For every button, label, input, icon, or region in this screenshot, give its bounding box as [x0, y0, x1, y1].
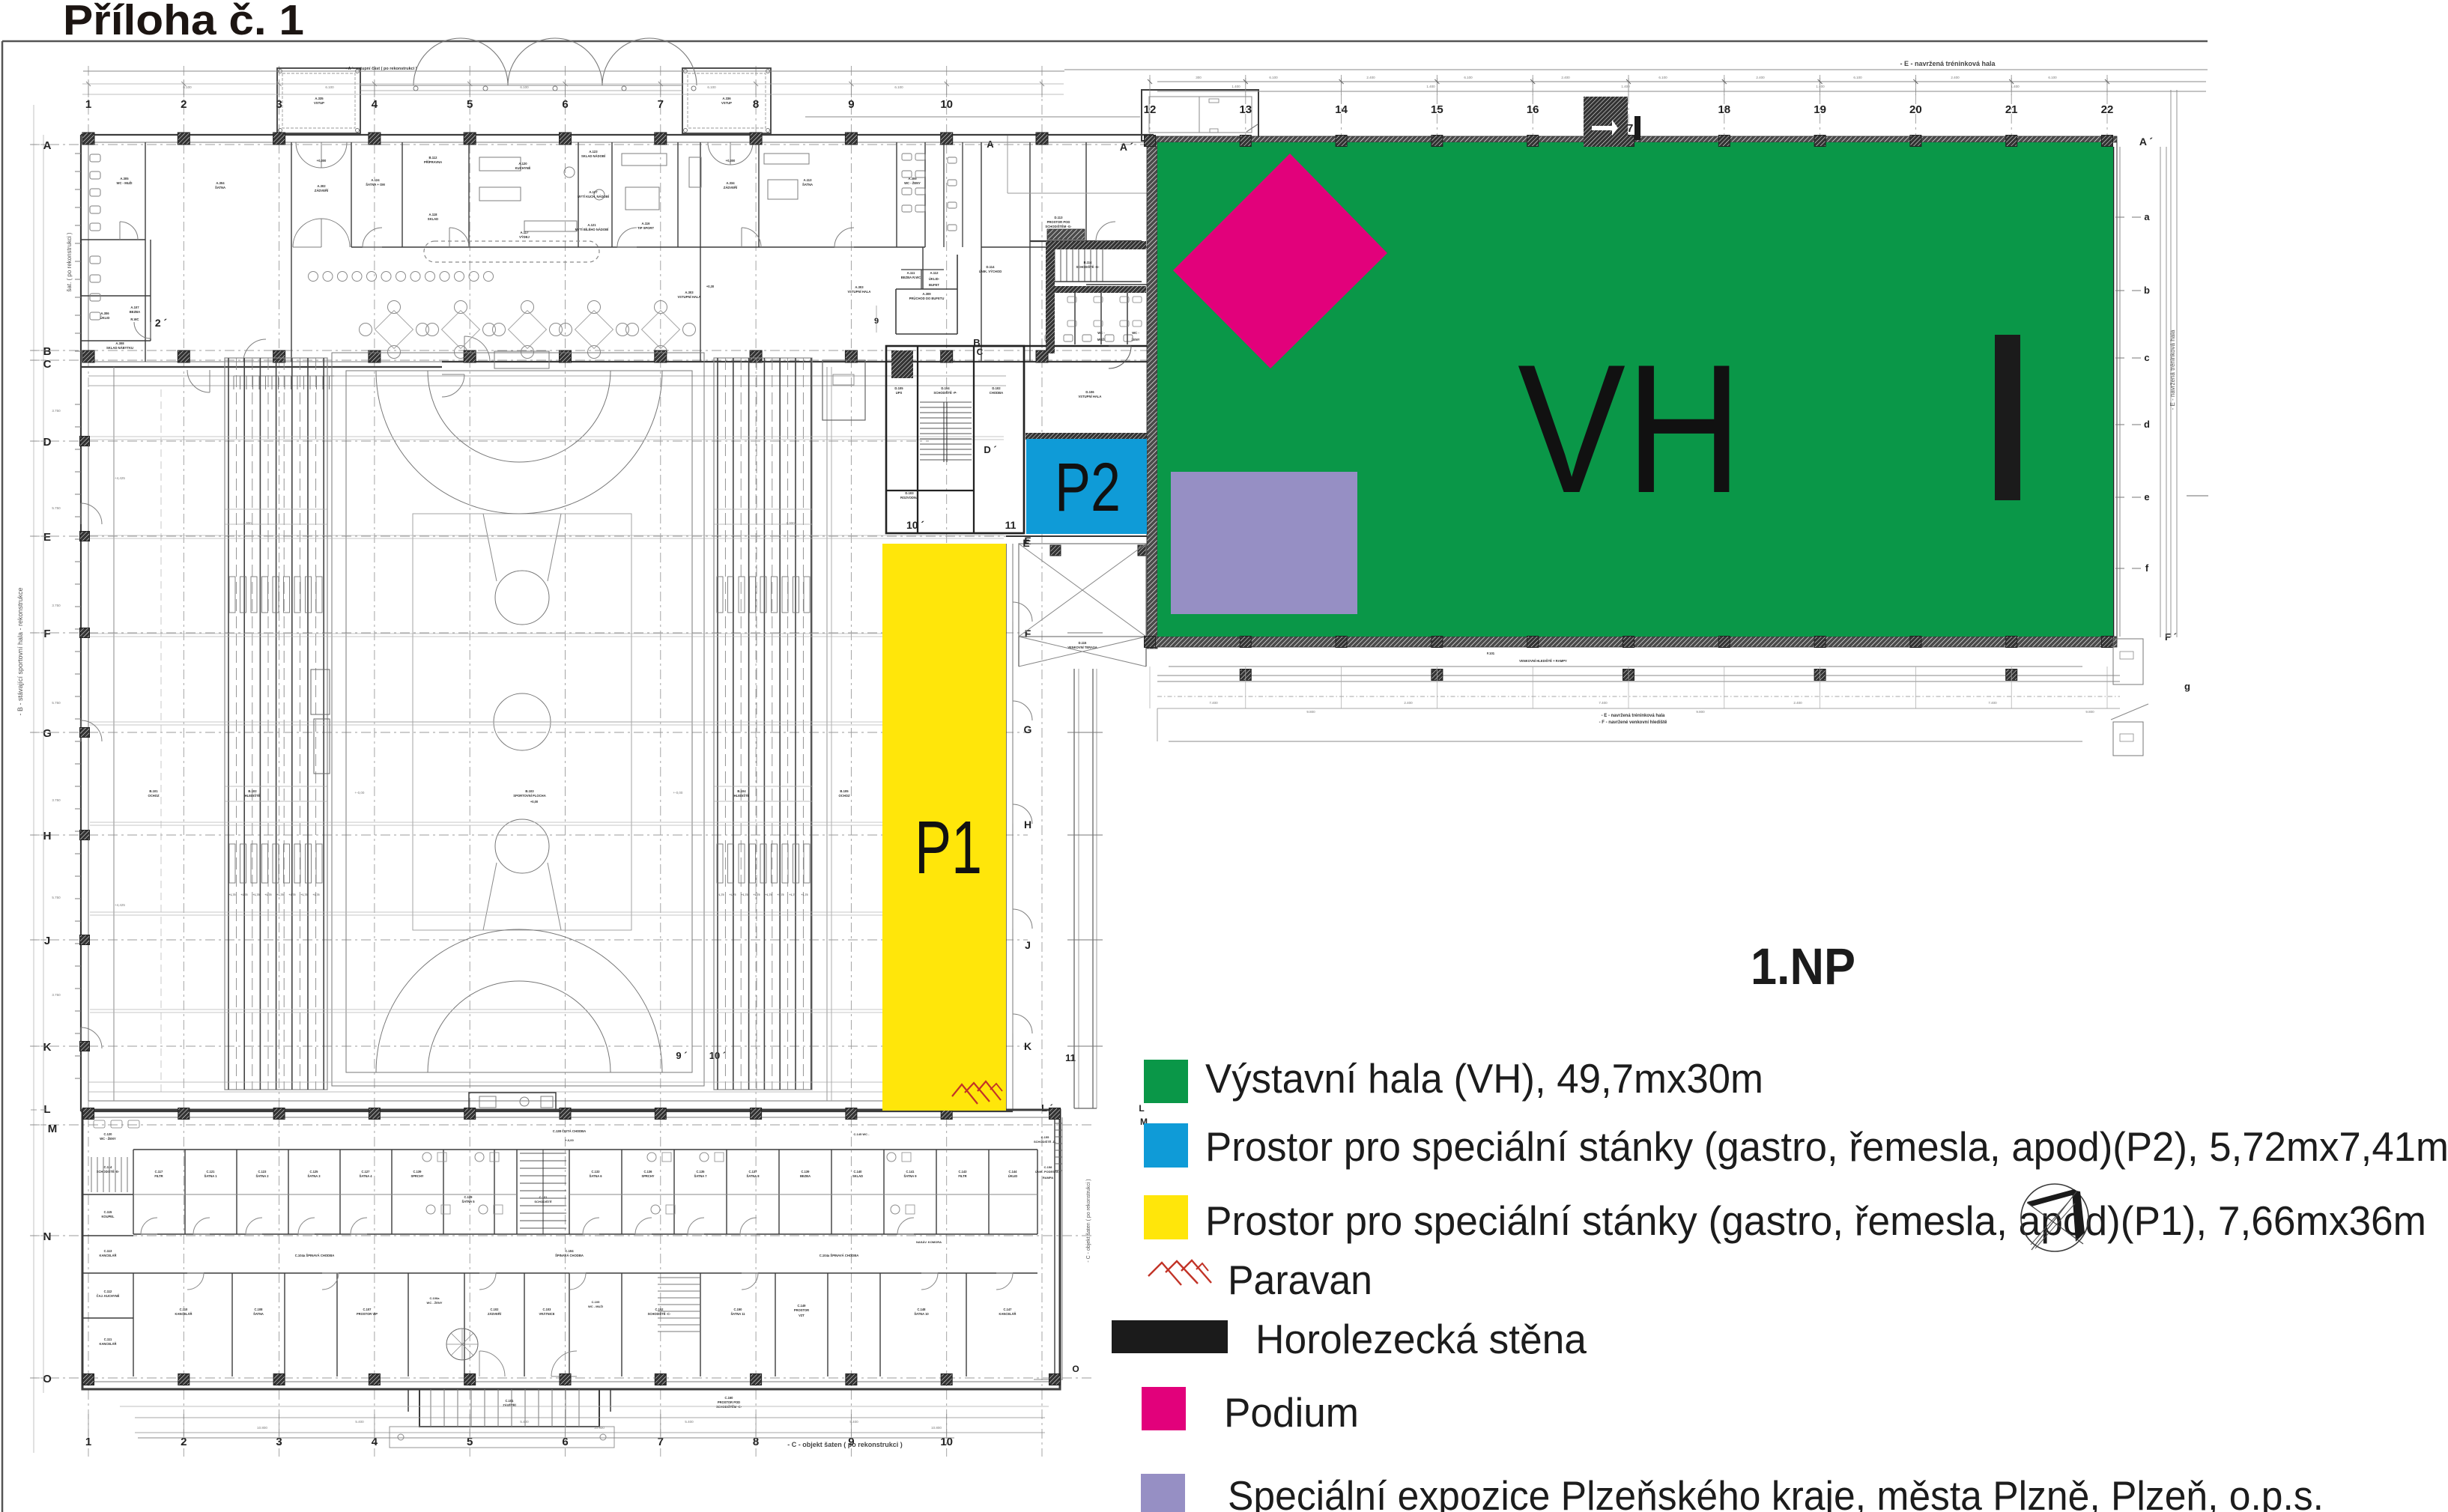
svg-text:C.145 WC -: C.145 WC -	[854, 1132, 870, 1136]
svg-text:300: 300	[1196, 76, 1202, 79]
svg-text:TIP SPORT: TIP SPORT	[637, 226, 654, 230]
svg-text:5.400: 5.400	[355, 1420, 364, 1424]
svg-text:6.100: 6.100	[325, 85, 334, 89]
svg-text:Prostor pro speciální stánky (: Prostor pro speciální stánky (gastro, ře…	[1205, 1123, 2448, 1170]
svg-text:B.114: B.114	[1084, 261, 1092, 264]
svg-text:7.400: 7.400	[1599, 701, 1608, 705]
svg-text:10: 10	[940, 98, 953, 111]
svg-text:9.800: 9.800	[2085, 710, 2094, 714]
svg-text:C.143: C.143	[959, 1170, 968, 1174]
svg-text:A.306: A.306	[100, 312, 109, 315]
svg-text:f: f	[2145, 562, 2149, 574]
svg-text:+1,75: +1,75	[252, 893, 259, 896]
svg-text:FILTR: FILTR	[958, 1174, 966, 1178]
svg-text:- A ´- vstupní část ( po rek: - A ´- vstupní část ( po rekonstrukci )	[345, 67, 416, 71]
svg-text:+4,425: +4,425	[115, 903, 125, 907]
svg-text:M: M	[48, 1123, 58, 1135]
svg-text:L: L	[43, 1103, 50, 1116]
svg-text:+0,300: +0,300	[317, 159, 327, 163]
svg-text:C.136: C.136	[644, 1170, 653, 1174]
svg-text:+0,00: +0,00	[530, 800, 539, 804]
svg-text:C.147: C.147	[1004, 1308, 1013, 1311]
svg-text:F: F	[1025, 628, 1031, 640]
svg-text:OCHOZ: OCHOZ	[838, 794, 850, 798]
svg-text:HLEDIŠTĚ: HLEDIŠTĚ	[734, 794, 750, 798]
svg-text:C.115: C.115	[104, 1210, 112, 1214]
svg-text:PROSTOR POD: PROSTOR POD	[718, 1400, 740, 1404]
svg-text:WC -: WC -	[1132, 331, 1139, 335]
svg-text:+1,75: +1,75	[753, 893, 760, 896]
svg-text:A ´: A ´	[2139, 136, 2153, 148]
svg-text:BEZBA R.WC: BEZBA R.WC	[901, 276, 921, 279]
svg-text:ŠATNA 6: ŠATNA 6	[589, 1174, 602, 1178]
svg-text:2.400: 2.400	[1756, 76, 1765, 79]
svg-text:+1,75: +1,75	[312, 893, 319, 896]
svg-text:1.NP: 1.NP	[1751, 938, 1855, 995]
svg-text:b: b	[2144, 285, 2150, 296]
svg-text:ŠATNA 5: ŠATNA 5	[461, 1200, 475, 1203]
svg-text:11: 11	[1005, 519, 1017, 531]
svg-text:C.144: C.144	[1009, 1170, 1018, 1174]
svg-text:PROSTOR VIP: PROSTOR VIP	[357, 1312, 378, 1316]
svg-text:C.150: C.150	[734, 1308, 743, 1311]
svg-text:+1,75: +1,75	[729, 893, 736, 896]
svg-text:HLEDIŠTĚ: HLEDIŠTĚ	[245, 794, 261, 798]
svg-text:WC - ŽENY: WC - ŽENY	[904, 181, 921, 185]
svg-text:A.113: A.113	[804, 178, 813, 182]
svg-text:A: A	[43, 139, 52, 152]
svg-text:C.141: C.141	[906, 1170, 915, 1174]
svg-text:P2: P2	[1055, 449, 1121, 526]
svg-text:ŠATNA 8: ŠATNA 8	[746, 1174, 760, 1178]
svg-text:C.107: C.107	[363, 1308, 372, 1311]
svg-text:ŠATNA 2: ŠATNA 2	[255, 1174, 269, 1178]
svg-text:F.101: F.101	[1487, 652, 1495, 655]
svg-text:Speciální expozice Plzeňského: Speciální expozice Plzeňského kraje, měs…	[1228, 1472, 2324, 1512]
svg-text:C.104a ŠPINAVÁ CHODBA: C.104a ŠPINAVÁ CHODBA	[819, 1254, 859, 1257]
svg-text:- F - navržené venkovní hledi: - F - navržené venkovní hlediště	[1599, 720, 1667, 725]
svg-text:D.106: D.106	[1085, 390, 1094, 394]
svg-text:Příloha č. 1: Příloha č. 1	[63, 0, 304, 44]
svg-text:C.138 ČISTÁ CHODBA: C.138 ČISTÁ CHODBA	[553, 1129, 586, 1133]
svg-text:A.121: A.121	[587, 223, 596, 227]
svg-text:A.309: A.309	[922, 292, 931, 296]
svg-text:FILTR: FILTR	[154, 1174, 163, 1178]
svg-text:7.400: 7.400	[1209, 701, 1218, 705]
svg-text:- E - navržená tréninková hal: - E - navržená tréninková hala	[1900, 60, 1996, 67]
svg-text:Podium: Podium	[1224, 1389, 1359, 1436]
svg-text:8: 8	[753, 98, 759, 111]
svg-text:D.105: D.105	[894, 386, 903, 390]
svg-text:ÚNIK. VÝCHOD: ÚNIK. VÝCHOD	[979, 270, 1002, 273]
svg-text:KANCELÁŘ: KANCELÁŘ	[100, 1254, 117, 1257]
svg-text:1: 1	[85, 1436, 91, 1448]
svg-text:12: 12	[1144, 103, 1157, 116]
svg-text:C.148: C.148	[918, 1308, 927, 1311]
svg-text:K: K	[43, 1041, 52, 1054]
svg-text:C.155: C.155	[1041, 1135, 1049, 1139]
svg-text:C.102: C.102	[491, 1308, 500, 1311]
svg-text:Paravan: Paravan	[1228, 1257, 1372, 1303]
svg-text:C.120: C.120	[104, 1132, 113, 1136]
svg-text:N: N	[43, 1230, 52, 1243]
svg-text:SKLAD: SKLAD	[852, 1174, 863, 1178]
svg-text:D.114: D.114	[987, 265, 996, 269]
svg-text:MYTÍ KUCH. NÁDOBÍ: MYTÍ KUCH. NÁDOBÍ	[578, 195, 610, 198]
svg-text:6.100: 6.100	[707, 85, 716, 89]
svg-text:A.303: A.303	[685, 291, 694, 294]
svg-text:VRÁTNICE: VRÁTNICE	[539, 1312, 555, 1316]
svg-text:A.118: A.118	[429, 213, 438, 216]
svg-text:A.305: A.305	[120, 177, 129, 180]
svg-text:ŠATNA 11: ŠATNA 11	[730, 1312, 745, 1316]
svg-text:C.139: C.139	[802, 1170, 811, 1174]
svg-text:C.106a: C.106a	[430, 1296, 440, 1300]
svg-text:+1,75: +1,75	[741, 893, 748, 896]
svg-text:6.100: 6.100	[1269, 76, 1278, 79]
svg-text:SKLAD NÁDOBÍ: SKLAD NÁDOBÍ	[581, 154, 606, 158]
svg-text:C.114: C.114	[104, 1165, 112, 1169]
svg-text:SKLAD NÁBYTKU: SKLAD NÁBYTKU	[106, 346, 133, 350]
svg-text:ÚKLID: ÚKLID	[1008, 1174, 1018, 1178]
svg-text:+-0,00: +-0,00	[565, 1138, 574, 1142]
svg-text:+1,75: +1,75	[264, 893, 271, 896]
svg-text:SCHODIŠTĚM -C-: SCHODIŠTĚM -C-	[716, 1405, 742, 1409]
svg-text:2.400: 2.400	[1561, 76, 1570, 79]
svg-text:ŠATNA 4: ŠATNA 4	[359, 1174, 372, 1178]
svg-text:5.750: 5.750	[52, 701, 61, 705]
svg-text:ZÁDVEŘÍ: ZÁDVEŘÍ	[724, 186, 738, 189]
svg-text:+1,75: +1,75	[789, 893, 796, 896]
svg-text:F: F	[43, 628, 50, 640]
svg-text:ZÁDVEŘÍ: ZÁDVEŘÍ	[315, 189, 329, 192]
svg-text:e: e	[2144, 491, 2149, 503]
svg-text:C.158: C.158	[1044, 1165, 1052, 1169]
svg-text:KUCHYNĚ: KUCHYNĚ	[515, 166, 531, 170]
svg-text:3.750: 3.750	[52, 798, 61, 802]
svg-text:D.115: D.115	[1079, 641, 1087, 645]
svg-text:9.800: 9.800	[1696, 710, 1705, 714]
svg-text:A.336: A.336	[722, 97, 731, 100]
svg-text:WC - ŽENY: WC - ŽENY	[100, 1137, 116, 1141]
svg-text:VSTUP: VSTUP	[721, 101, 732, 105]
svg-text:SCHODIŠTĚ -E-: SCHODIŠTĚ -E-	[97, 1170, 120, 1174]
svg-text:D: D	[43, 436, 52, 449]
svg-text:VÝDEJ: VÝDEJ	[519, 235, 530, 239]
svg-text:10 ´: 10 ´	[906, 519, 924, 531]
svg-text:C.127: C.127	[362, 1170, 371, 1174]
svg-text:C.149: C.149	[798, 1304, 807, 1308]
svg-text:C.105: C.105	[592, 1300, 600, 1304]
svg-text:BEZBA: BEZBA	[800, 1174, 811, 1178]
svg-text:BEZBA: BEZBA	[130, 310, 140, 314]
svg-text:Výstavní hala (VH), 49,7mx30m: Výstavní hala (VH), 49,7mx30m	[1205, 1055, 1763, 1102]
svg-text:PROSTOR POD: PROSTOR POD	[1047, 220, 1070, 224]
svg-text:ZÁDVEŘÍ: ZÁDVEŘÍ	[488, 1312, 502, 1316]
svg-text:C.125: C.125	[310, 1170, 319, 1174]
svg-text:SCHODIŠTĚ -P-: SCHODIŠTĚ -P-	[933, 391, 957, 395]
svg-text:ŠATNA: ŠATNA	[253, 1312, 264, 1316]
svg-text:15: 15	[1431, 103, 1443, 116]
svg-text:ŠATNA 3: ŠATNA 3	[307, 1174, 321, 1178]
svg-text:10.800: 10.800	[594, 1426, 605, 1430]
svg-text:22: 22	[2101, 103, 2114, 116]
svg-text:VSTUPNÍ HALA: VSTUPNÍ HALA	[848, 290, 871, 294]
svg-text:+1,75: +1,75	[765, 893, 772, 896]
svg-text:6.100: 6.100	[520, 85, 529, 89]
svg-text:B.105: B.105	[840, 789, 849, 793]
svg-text:C.112: C.112	[104, 1290, 112, 1293]
svg-text:g: g	[2184, 681, 2190, 692]
svg-text:G: G	[1024, 723, 1032, 735]
svg-text:A.304: A.304	[216, 181, 225, 185]
svg-text:A.334: A.334	[726, 181, 735, 185]
svg-text:K: K	[1024, 1040, 1031, 1052]
svg-text:20: 20	[1909, 103, 1922, 116]
svg-text:J: J	[1025, 939, 1031, 951]
svg-text:A.116: A.116	[642, 222, 651, 225]
svg-text:C.117: C.117	[155, 1170, 163, 1174]
svg-text:ŠATNA: ŠATNA	[215, 186, 225, 189]
svg-text:A.302: A.302	[317, 184, 326, 188]
svg-text:KANCELÁŘ: KANCELÁŘ	[100, 1342, 117, 1346]
svg-text:4: 4	[372, 98, 378, 111]
svg-text:E: E	[43, 531, 51, 544]
svg-text:C.121: C.121	[207, 1170, 216, 1174]
svg-text:WC - ŽENY: WC - ŽENY	[427, 1301, 443, 1305]
svg-text:A: A	[987, 139, 994, 150]
svg-text:2.400: 2.400	[1366, 76, 1375, 79]
svg-text:C.111: C.111	[104, 1338, 112, 1341]
svg-text:WC - MUŽI: WC - MUŽI	[117, 181, 133, 185]
svg-text:C.152: C.152	[655, 1308, 664, 1311]
svg-text:C.133: C.133	[592, 1170, 601, 1174]
svg-text:KOUPEL: KOUPEL	[101, 1215, 115, 1218]
svg-text:3.750: 3.750	[52, 409, 61, 413]
svg-text:B.104: B.104	[737, 789, 746, 793]
svg-text:A.107: A.107	[130, 306, 139, 309]
svg-text:A.117: A.117	[521, 231, 530, 234]
svg-text:C.135: C.135	[697, 1170, 706, 1174]
svg-text:2 ´: 2 ´	[155, 317, 168, 329]
svg-text:SCHODIŠTĚ -C-: SCHODIŠTĚ -C-	[648, 1312, 671, 1316]
svg-text:C: C	[43, 358, 52, 371]
svg-text:VENKOVNÍ HLEDIŠTĚ + RAMPY: VENKOVNÍ HLEDIŠTĚ + RAMPY	[1519, 659, 1567, 663]
svg-text:SCHODIŠTĚM -G-: SCHODIŠTĚM -G-	[1045, 225, 1072, 228]
svg-text:6: 6	[562, 98, 568, 111]
svg-text:O: O	[1072, 1364, 1079, 1374]
svg-text:5: 5	[467, 98, 473, 111]
svg-text:B.103: B.103	[525, 789, 534, 793]
svg-text:C.123: C.123	[258, 1170, 267, 1174]
svg-text:R.WC: R.WC	[130, 318, 139, 321]
svg-text:A.111: A.111	[907, 271, 915, 275]
svg-text:C.131: C.131	[539, 1195, 548, 1199]
svg-text:VSTUP: VSTUP	[314, 101, 324, 105]
svg-text:6.100: 6.100	[1464, 76, 1473, 79]
svg-text:16: 16	[1527, 103, 1539, 116]
svg-text:7: 7	[658, 98, 664, 111]
svg-text:2.300: 2.300	[243, 521, 252, 525]
svg-text:1.400: 1.400	[1231, 85, 1240, 88]
svg-text:SCHODIŠTĚ: SCHODIŠTĚ	[534, 1200, 552, 1203]
svg-text:ŠATNA 7: ŠATNA 7	[694, 1174, 707, 1178]
svg-text:2.400: 2.400	[1793, 701, 1802, 705]
svg-text:ÚKLID: ÚKLID	[100, 316, 110, 320]
svg-text:VENKOVNÍ TERASA: VENKOVNÍ TERASA	[1067, 646, 1097, 649]
svg-text:C.140: C.140	[854, 1170, 863, 1174]
svg-text:WC - MUŽI: WC - MUŽI	[588, 1305, 603, 1308]
svg-text:C.110: C.110	[180, 1308, 188, 1311]
svg-text:H: H	[1024, 819, 1031, 831]
svg-text:D.113: D.113	[1055, 216, 1064, 219]
svg-text:- B - stávající sportovní hal: - B - stávající sportovní hala - rekonst…	[16, 587, 24, 715]
svg-text:RAMPA: RAMPA	[1043, 1176, 1053, 1179]
svg-text:A.123: A.123	[589, 150, 598, 154]
svg-text:OCHOZ: OCHOZ	[148, 794, 160, 798]
svg-text:PRŮCHOD DO BUFETU: PRŮCHOD DO BUFETU	[909, 297, 945, 300]
svg-text:- C - objekt šaten ( po rekon: - C - objekt šaten ( po rekonstrukci )	[1086, 1179, 1091, 1262]
svg-text:Horolezecká stěna: Horolezecká stěna	[1255, 1316, 1587, 1362]
svg-text:L: L	[1139, 1103, 1144, 1114]
svg-text:A.112: A.112	[930, 271, 939, 275]
svg-text:9: 9	[848, 98, 854, 111]
svg-text:BUFET: BUFET	[929, 283, 939, 287]
svg-text:1.400: 1.400	[1426, 85, 1435, 88]
svg-text:10.800: 10.800	[931, 1426, 942, 1430]
svg-text:B.102: B.102	[248, 789, 257, 793]
svg-text:2: 2	[181, 98, 187, 111]
svg-text:+1,75: +1,75	[228, 893, 235, 896]
svg-text:7.400: 7.400	[1988, 701, 1997, 705]
svg-text:J: J	[44, 935, 50, 947]
svg-text:9.800: 9.800	[1306, 710, 1315, 714]
svg-text:ROZVODNA: ROZVODNA	[900, 496, 918, 500]
svg-text:ÚNIK. PODESTA +: ÚNIK. PODESTA +	[1035, 1170, 1061, 1174]
svg-text:13: 13	[1239, 103, 1252, 116]
svg-text:D.102: D.102	[992, 386, 1001, 390]
svg-text:5.400: 5.400	[685, 1420, 694, 1424]
svg-text:E: E	[1022, 537, 1029, 549]
svg-text:1.400: 1.400	[1816, 85, 1825, 88]
svg-text:A.335: A.335	[315, 97, 324, 100]
svg-text:+1,75: +1,75	[288, 893, 295, 896]
svg-text:ŠATNA 9: ŠATNA 9	[903, 1174, 917, 1178]
svg-text:C.129: C.129	[464, 1195, 473, 1199]
svg-text:A.124: A.124	[371, 178, 380, 182]
svg-text:A.303: A.303	[855, 285, 864, 289]
svg-text:+-0,00: +-0,00	[673, 791, 683, 795]
svg-text:5.400: 5.400	[520, 1420, 529, 1424]
svg-text:MYTÍ BÍLÉHO NÁDOBÍ: MYTÍ BÍLÉHO NÁDOBÍ	[575, 228, 610, 231]
svg-text:3.750: 3.750	[52, 993, 61, 997]
svg-text:10.800: 10.800	[257, 1426, 267, 1430]
svg-text:C.108: C.108	[255, 1308, 264, 1311]
svg-text:+-0,00: +-0,00	[355, 791, 365, 795]
svg-text:A.127: A.127	[589, 190, 598, 194]
svg-text:C.160: C.160	[725, 1396, 734, 1400]
svg-text:B.112: B.112	[429, 156, 438, 160]
svg-text:- E - navržená tréninková hal: - E - navržená tréninková hala	[1602, 714, 1665, 718]
svg-text:VH: VH	[1518, 326, 1742, 531]
svg-text:B.101: B.101	[149, 789, 158, 793]
svg-text:VSTUPNÍ HALA: VSTUPNÍ HALA	[678, 295, 701, 299]
svg-text:ŠPINAVÁ CHODBA: ŠPINAVÁ CHODBA	[555, 1254, 584, 1257]
svg-text:C.101: C.101	[506, 1399, 515, 1403]
svg-text:G: G	[43, 727, 52, 740]
svg-text:+4,425: +4,425	[115, 476, 125, 480]
svg-text:ÚKLID-: ÚKLID-	[929, 277, 940, 281]
svg-text:šat. ( po rekonstrukci ): šat. ( po rekonstrukci )	[66, 232, 73, 291]
svg-text:C.104: C.104	[565, 1249, 574, 1253]
svg-text:C: C	[977, 347, 984, 357]
svg-text:PROSTOR: PROSTOR	[794, 1308, 809, 1312]
svg-text:Prostor pro speciální stánky (: Prostor pro speciální stánky (gastro, ře…	[1205, 1197, 2426, 1244]
svg-text:21: 21	[2005, 103, 2018, 116]
svg-text:+1,75: +1,75	[801, 893, 808, 896]
svg-text:D.103: D.103	[905, 491, 914, 495]
svg-text:P1: P1	[915, 806, 982, 890]
svg-text:6.100: 6.100	[2048, 76, 2057, 79]
svg-text:B: B	[43, 345, 52, 358]
svg-text:2.400: 2.400	[1404, 701, 1413, 705]
svg-text:14: 14	[1335, 103, 1348, 116]
svg-text:2.400: 2.400	[1951, 76, 1960, 79]
svg-text:ČAJ. KUCHYNĚ: ČAJ. KUCHYNĚ	[97, 1294, 120, 1298]
svg-text:5.750: 5.750	[52, 896, 61, 899]
svg-text:1.400: 1.400	[2011, 85, 2020, 88]
svg-text:+1,75: +1,75	[240, 893, 247, 896]
svg-text:5.400: 5.400	[849, 1420, 858, 1424]
svg-text:C.113: C.113	[104, 1249, 112, 1253]
svg-text:a: a	[2144, 211, 2150, 222]
svg-text:6.100: 6.100	[183, 85, 192, 89]
svg-text:+1,75: +1,75	[276, 893, 283, 896]
svg-text:18: 18	[1718, 103, 1730, 116]
svg-text:A.120: A.120	[518, 162, 527, 166]
svg-text:6.100: 6.100	[894, 85, 903, 89]
svg-text:VSTUPNÍ HALA: VSTUPNÍ HALA	[1079, 395, 1102, 398]
svg-text:+1,75: +1,75	[300, 893, 307, 896]
svg-text:NASÁV. KOMORA: NASÁV. KOMORA	[916, 1240, 942, 1244]
svg-text:- C - objekt šaten ( po rekon: - C - objekt šaten ( po rekonstrukci )	[787, 1441, 903, 1448]
svg-text:A.308: A.308	[115, 341, 124, 345]
svg-text:C.137: C.137	[749, 1170, 758, 1174]
svg-text:CHODBA: CHODBA	[990, 391, 1003, 395]
svg-text:H: H	[43, 830, 52, 842]
svg-text:C.139: C.139	[413, 1170, 422, 1174]
svg-text:PŘÍPRAVNA: PŘÍPRAVNA	[424, 160, 442, 164]
svg-text:6.100: 6.100	[1853, 76, 1862, 79]
svg-text:D.104: D.104	[941, 386, 950, 390]
svg-text:+0,30: +0,30	[706, 285, 715, 288]
svg-text:ŠATNA 1: ŠATNA 1	[204, 1174, 217, 1178]
svg-text:UPS: UPS	[896, 391, 903, 395]
svg-text:9 ´: 9 ´	[676, 1050, 687, 1061]
svg-text:SPORTOVNÍ PLOCHA: SPORTOVNÍ PLOCHA	[513, 794, 545, 798]
svg-text:SPRCHY: SPRCHY	[641, 1174, 654, 1178]
svg-text:2.300: 2.300	[786, 521, 795, 525]
svg-text:+1,75: +1,75	[717, 893, 724, 896]
svg-text:6.100: 6.100	[1658, 76, 1667, 79]
svg-text:SCHODIŠTĚ -G-: SCHODIŠTĚ -G-	[1076, 265, 1100, 269]
svg-text:ŠATNA: ŠATNA	[802, 183, 813, 186]
svg-text:A ´: A ´	[1120, 141, 1133, 153]
svg-text:3.750: 3.750	[52, 604, 61, 607]
svg-text:d: d	[2144, 419, 2150, 430]
svg-text:c: c	[2144, 352, 2149, 363]
svg-text:+1,75: +1,75	[777, 893, 784, 896]
